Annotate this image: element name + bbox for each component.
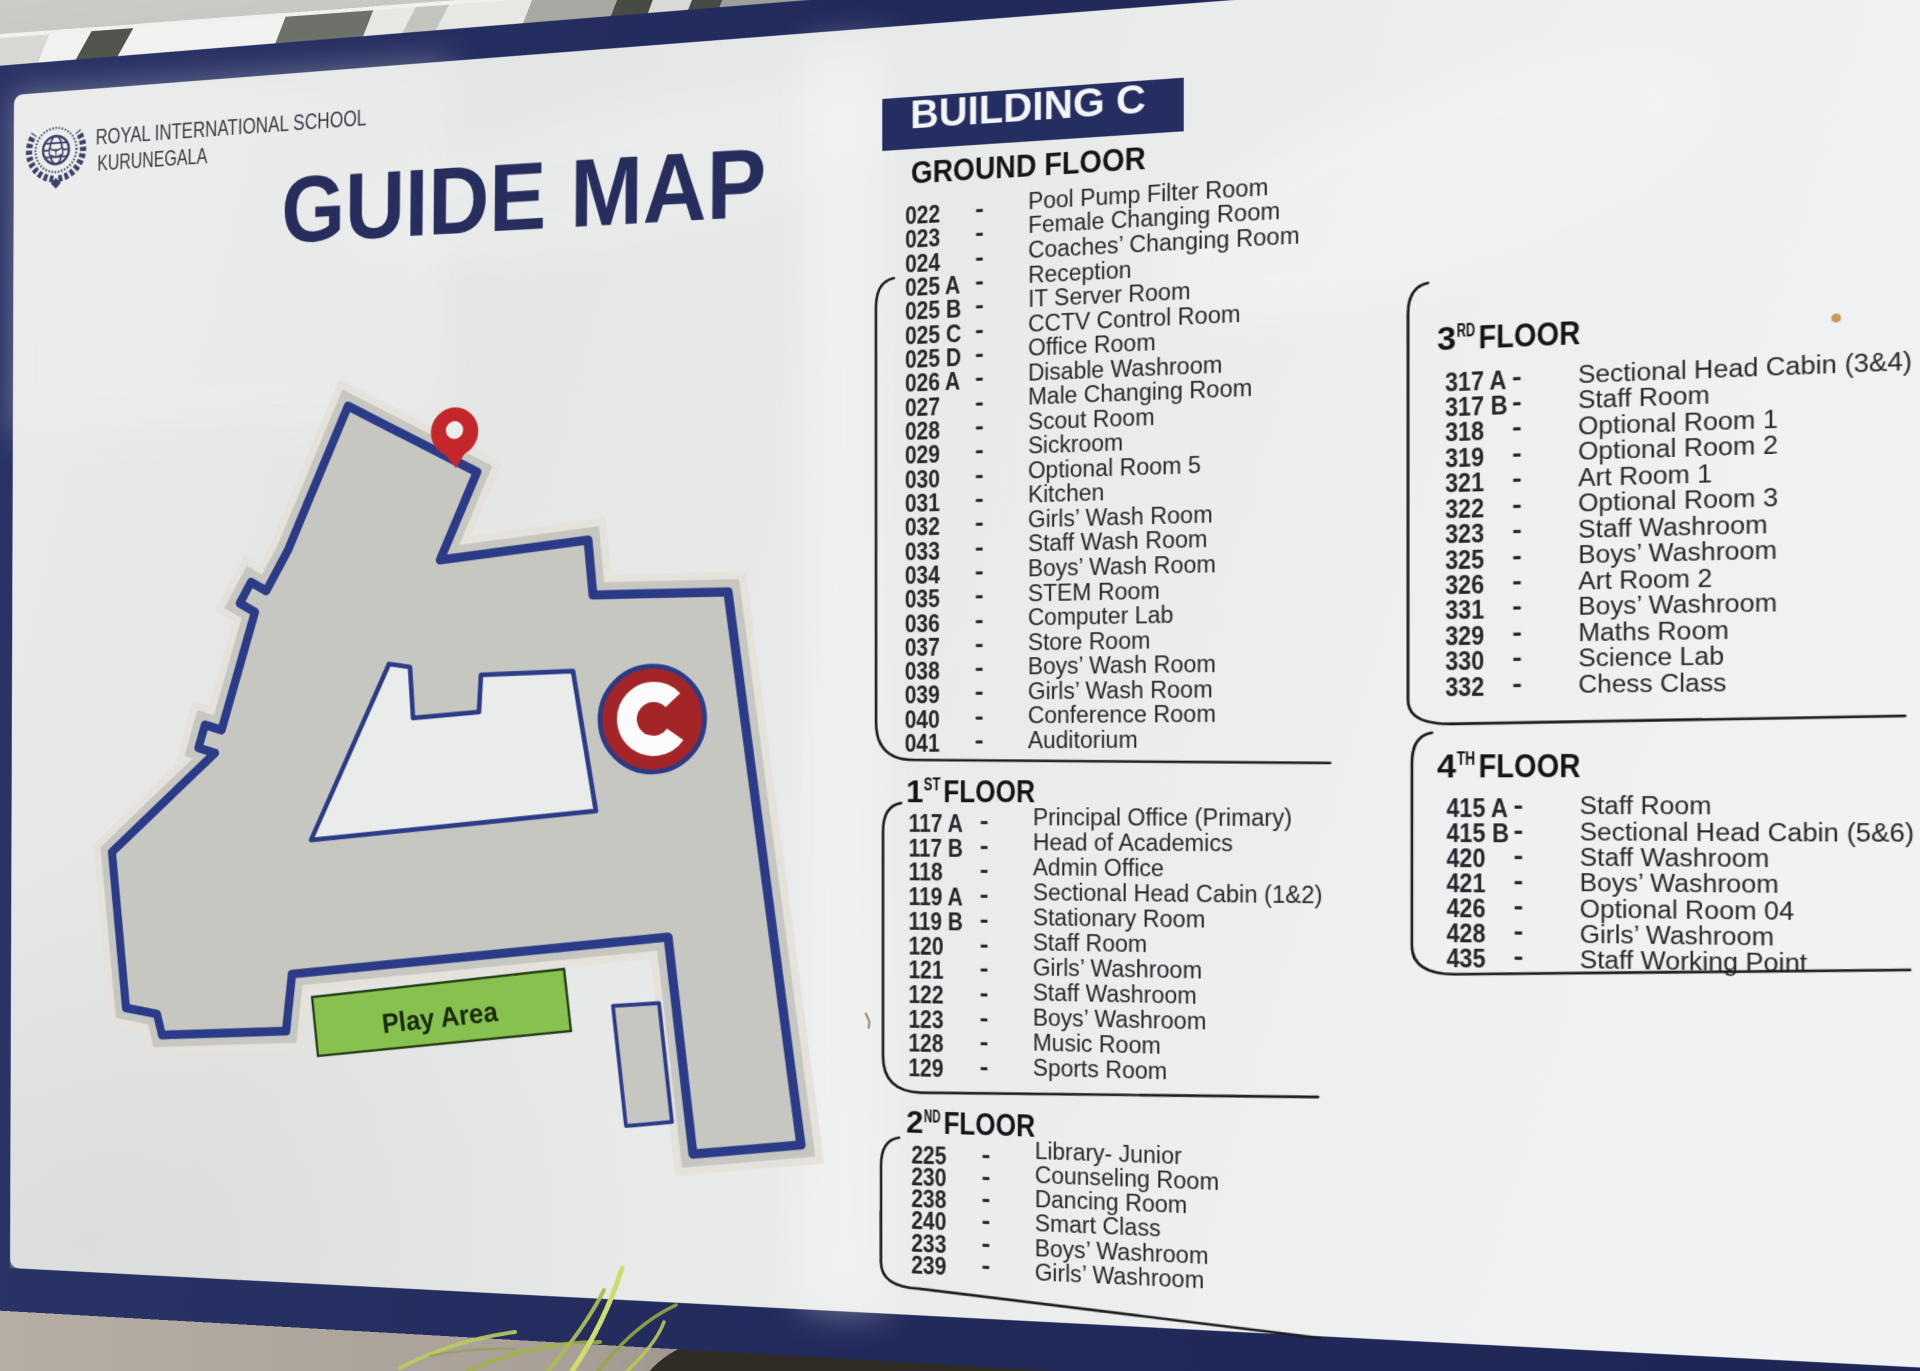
svg-text:FLOOR: FLOOR xyxy=(1479,315,1581,356)
svg-text:Optional Room 5: Optional Room 5 xyxy=(1028,452,1201,485)
svg-text:Admin Office: Admin Office xyxy=(1033,855,1164,883)
svg-text:Auditorium: Auditorium xyxy=(1028,726,1138,753)
svg-text:Chess Class: Chess Class xyxy=(1578,669,1726,699)
svg-text:332: 332 xyxy=(1445,671,1484,702)
svg-text:FLOOR: FLOOR xyxy=(943,1107,1035,1145)
svg-text:-: - xyxy=(1514,941,1524,972)
svg-text:239: 239 xyxy=(911,1250,946,1280)
svg-text:Principal Office (Primary): Principal Office (Primary) xyxy=(1033,805,1292,833)
svg-text:Staff Room: Staff Room xyxy=(1033,930,1147,959)
svg-text:129: 129 xyxy=(908,1053,943,1083)
svg-text:FLOOR: FLOOR xyxy=(1479,747,1581,784)
svg-text:4: 4 xyxy=(1437,748,1456,784)
svg-text:Conference Room: Conference Room xyxy=(1028,701,1216,729)
svg-text:-: - xyxy=(1512,668,1522,699)
svg-text:Staff Room: Staff Room xyxy=(1580,792,1712,821)
svg-text:435: 435 xyxy=(1446,943,1485,974)
svg-text:Sports Room: Sports Room xyxy=(1033,1055,1167,1086)
svg-text:041: 041 xyxy=(905,729,940,758)
svg-text:FLOOR: FLOOR xyxy=(943,774,1035,809)
svg-text:Head of Academics: Head of Academics xyxy=(1033,830,1233,858)
svg-text:ST: ST xyxy=(924,776,941,796)
svg-text:3: 3 xyxy=(1437,320,1456,357)
svg-text:RD: RD xyxy=(1457,321,1476,342)
svg-text:-: - xyxy=(975,726,984,755)
svg-text:TH: TH xyxy=(1457,749,1475,770)
svg-text:1: 1 xyxy=(906,774,924,808)
svg-text:2: 2 xyxy=(906,1105,923,1140)
svg-text:-: - xyxy=(981,1250,990,1279)
svg-text:-: - xyxy=(980,1052,989,1081)
svg-text:ND: ND xyxy=(924,1107,941,1127)
